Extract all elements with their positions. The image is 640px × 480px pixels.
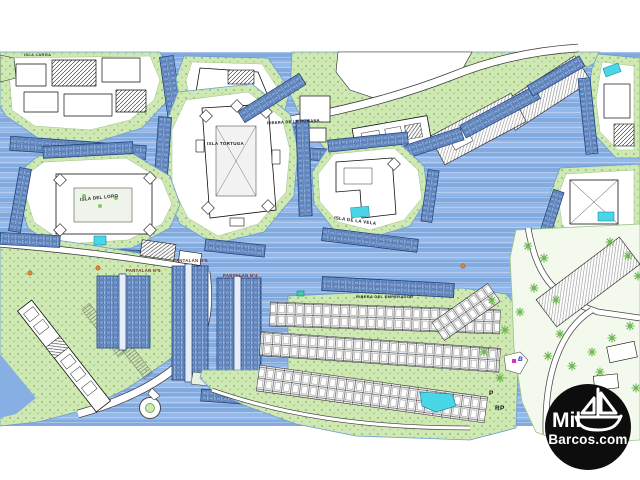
- label-marker-p: P: [489, 391, 494, 398]
- label-marker-b: B: [518, 357, 523, 364]
- island-top-right: [578, 54, 640, 158]
- marina-map-drawing: [0, 0, 640, 480]
- logo-text-mil: Mil: [552, 409, 581, 433]
- label-ribera-del-emperador: RIBERA DEL EMPERADOR: [356, 295, 413, 299]
- milbarcos-logo[interactable]: Mil Barcos.com: [545, 384, 631, 470]
- marina-map-image: ISLA LARGA ISLA TORTUGA ISLA DEL LORO IS…: [0, 0, 640, 480]
- logo-text-barcos: Barcos.com: [545, 432, 631, 447]
- island-tortuga: [152, 73, 312, 257]
- pontoon-n4: [217, 276, 261, 382]
- pontoon-n6: [97, 274, 150, 350]
- label-pantalan-n4: PANTALÁN Nº4: [223, 274, 258, 278]
- pontoon-n5: [172, 264, 208, 382]
- label-marker-rp: RP: [495, 406, 505, 413]
- label-pantalan-n5: PANTALÁN Nº5: [173, 259, 208, 263]
- label-isla-tortuga: ISLA TORTUGA: [207, 142, 244, 147]
- label-isla-larga: ISLA LARGA: [24, 53, 51, 57]
- label-pantalan-n6: PANTALÁN Nº6: [126, 269, 161, 273]
